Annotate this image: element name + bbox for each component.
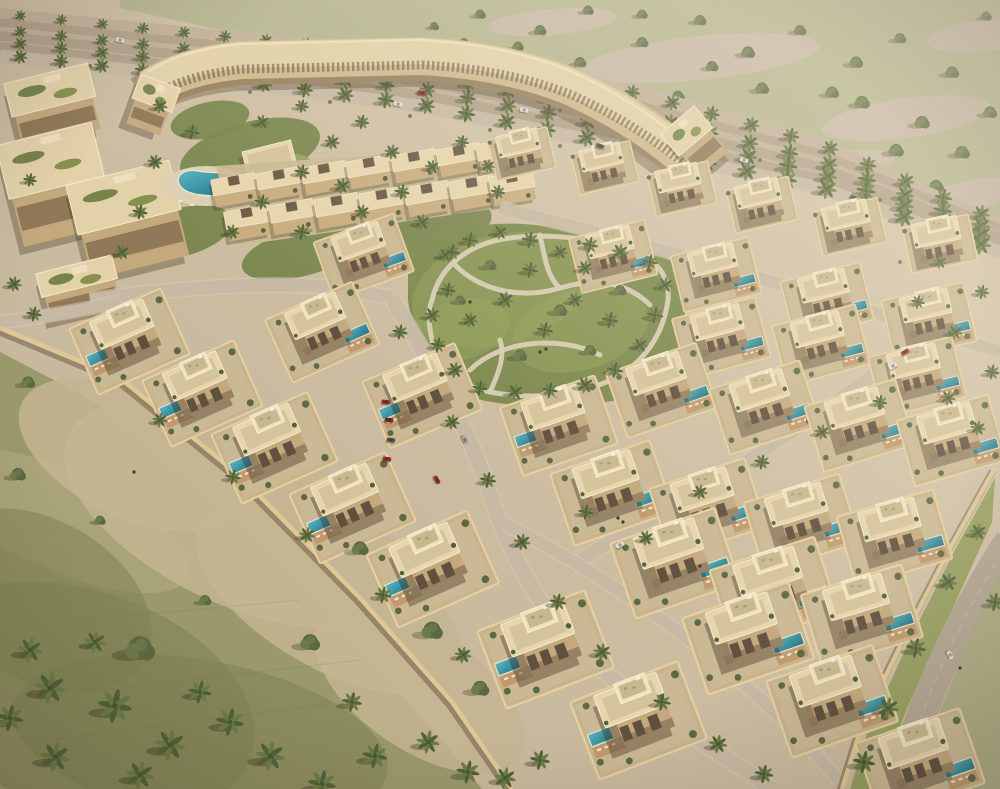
lighting-overlay (0, 0, 1000, 789)
aerial-render (0, 0, 1000, 789)
masterplan-illustration (0, 0, 1000, 789)
